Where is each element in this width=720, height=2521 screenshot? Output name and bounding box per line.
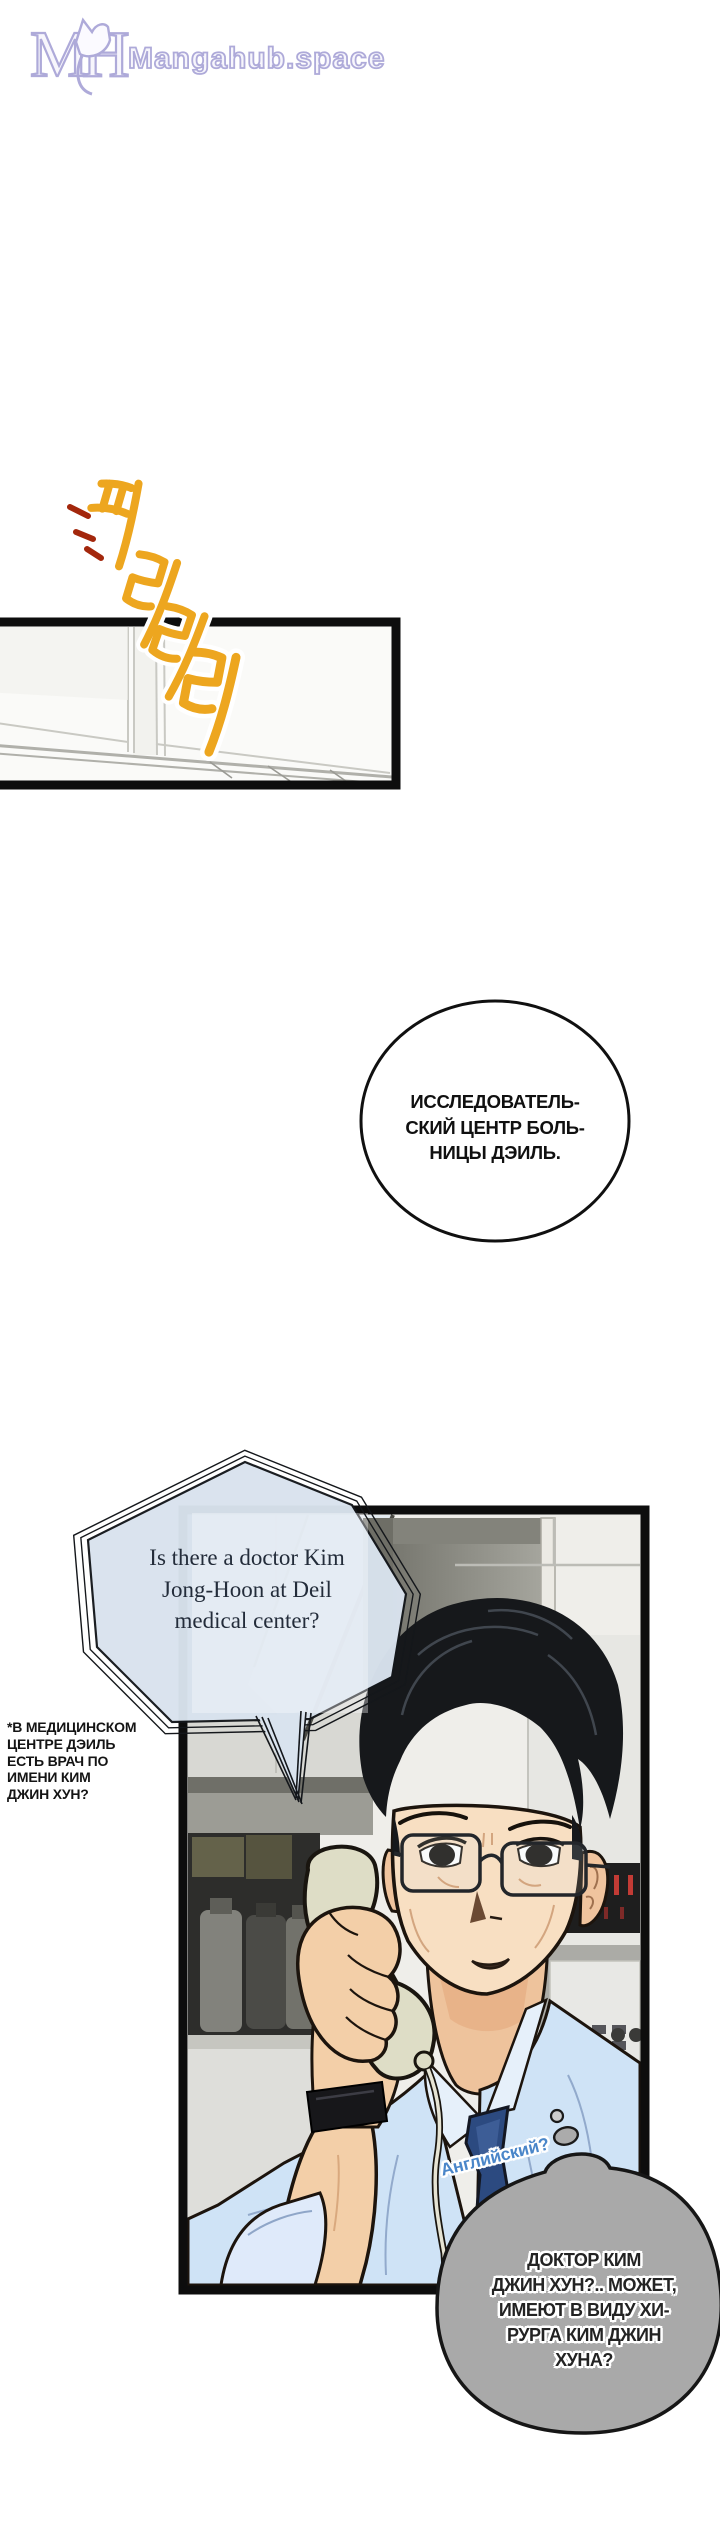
research-center-caption: ИССЛЕДОВАТЕЛЬ- СКИЙ ЦЕНТР БОЛЬ- НИЦЫ ДЭИ…	[372, 1089, 618, 1166]
caption-line: НИЦЫ ДЭИЛЬ.	[372, 1140, 618, 1166]
english-question-text: Is there a doctor Kim Jong-Hoon at Deil …	[118, 1542, 376, 1637]
note-line: ИМЕНИ КИМ	[7, 1769, 179, 1786]
thought-text: ДОКТОР КИМ ДЖИН ХУН?.. МОЖЕТ, ИМЕЮТ В ВИ…	[458, 2248, 710, 2373]
thought-line: ДЖИН ХУН?.. МОЖЕТ,	[458, 2273, 710, 2298]
note-line: ЦЕНТРЕ ДЭИЛЬ	[7, 1736, 179, 1753]
note-line: ДЖИН ХУН?	[7, 1786, 179, 1803]
site-logo[interactable]: M H Mangahub.space	[30, 18, 385, 94]
caption-line: ИССЛЕДОВАТЕЛЬ-	[372, 1089, 618, 1115]
translator-note: *В МЕДИЦИНСКОМ ЦЕНТРЕ ДЭИЛЬ ЕСТЬ ВРАЧ ПО…	[7, 1719, 179, 1803]
caption-line: СКИЙ ЦЕНТР БОЛЬ-	[372, 1115, 618, 1141]
bottle	[246, 1915, 286, 2029]
thought-line: ДОКТОР КИМ	[458, 2248, 710, 2273]
manga-page: 피리리리 M H Mangahub.space	[0, 0, 720, 2521]
thought-dot-small	[551, 2110, 563, 2122]
dialogue-line: medical center?	[118, 1605, 376, 1637]
dialogue-line: Is there a doctor Kim	[118, 1542, 376, 1574]
note-line: ЕСТЬ ВРАЧ ПО	[7, 1753, 179, 1770]
page-artwork: M H Mangahub.space	[0, 0, 720, 2521]
note-line: *В МЕДИЦИНСКОМ	[7, 1719, 179, 1736]
bottle	[200, 1910, 242, 2032]
logo-site-name: Mangahub.space	[128, 42, 385, 75]
thought-line: ХУНА?	[458, 2348, 710, 2373]
dialogue-line: Jong-Hoon at Deil	[118, 1574, 376, 1606]
thought-line: РУРГА КИМ ДЖИН	[458, 2323, 710, 2348]
thought-line: ИМЕЮТ В ВИДУ ХИ-	[458, 2298, 710, 2323]
